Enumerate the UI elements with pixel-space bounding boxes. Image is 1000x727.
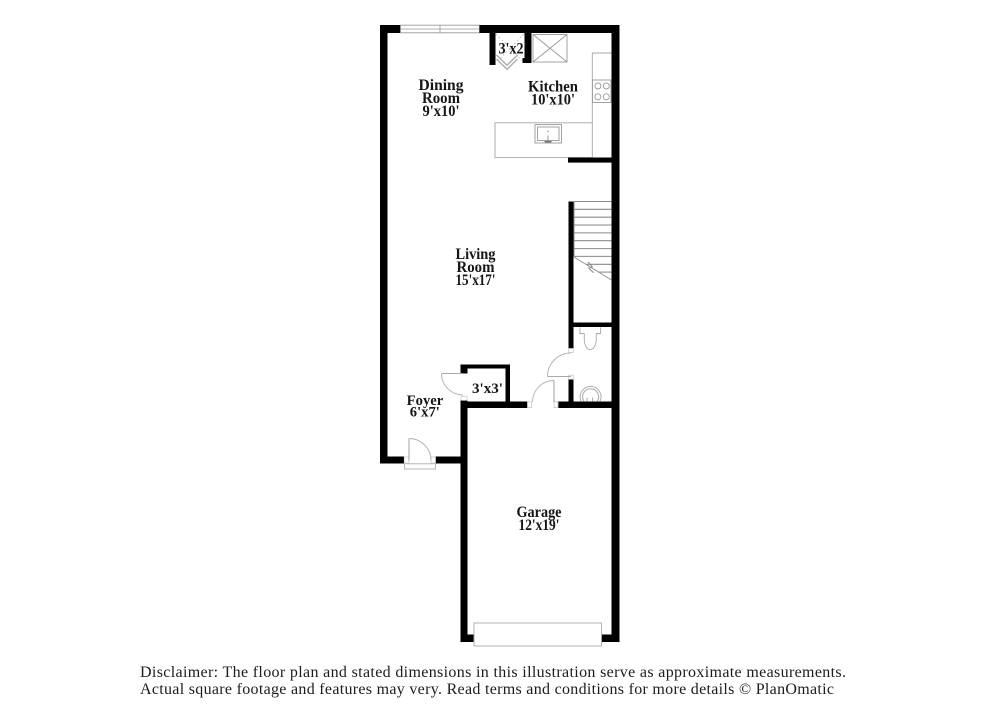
svg-text:10'x10': 10'x10' [531, 92, 575, 109]
svg-text:6'x7': 6'x7' [410, 405, 440, 421]
svg-text:Disclaimer: The floor plan and: Disclaimer: The floor plan and stated di… [140, 664, 846, 681]
svg-text:12'x19': 12'x19' [519, 517, 560, 534]
svg-text:Actual square footage and feat: Actual square footage and features may v… [140, 681, 834, 698]
svg-text:3'x2': 3'x2' [499, 41, 528, 58]
svg-text:3'x3': 3'x3' [472, 381, 503, 397]
svg-text:9'x10': 9'x10' [423, 103, 460, 120]
svg-text:15'x17': 15'x17' [456, 272, 496, 289]
